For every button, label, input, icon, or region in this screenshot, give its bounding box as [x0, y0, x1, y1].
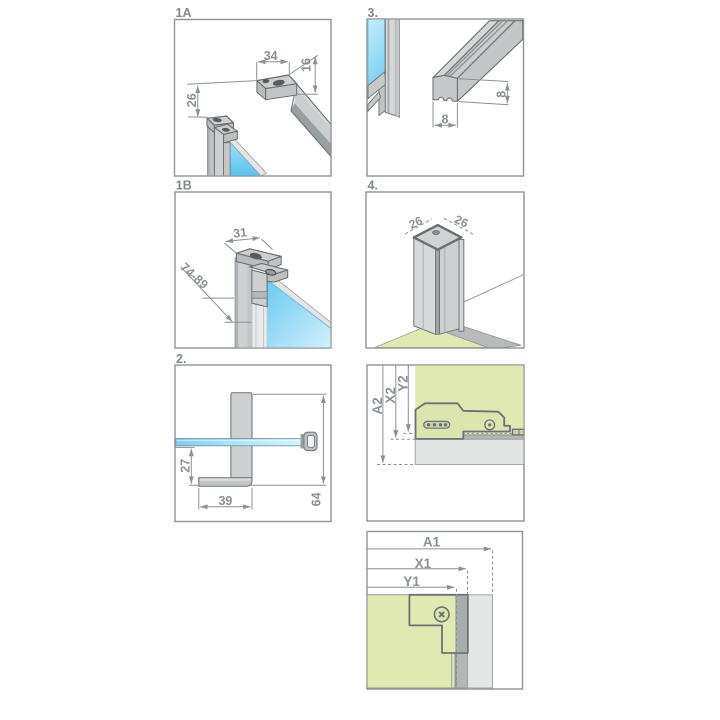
svg-text:1B: 1B	[176, 179, 192, 193]
svg-text:A2: A2	[370, 397, 385, 414]
svg-text:X1: X1	[415, 556, 432, 571]
svg-text:8: 8	[442, 112, 449, 126]
svg-text:31: 31	[232, 225, 247, 240]
svg-text:39: 39	[218, 494, 232, 508]
svg-text:4.: 4.	[368, 179, 378, 193]
svg-text:Y1: Y1	[403, 574, 420, 589]
svg-text:34: 34	[264, 49, 278, 63]
svg-text:8: 8	[494, 91, 508, 98]
svg-text:2.: 2.	[176, 352, 186, 366]
svg-text:64: 64	[309, 492, 323, 506]
svg-text:A1: A1	[423, 535, 441, 550]
svg-text:16: 16	[300, 58, 314, 72]
svg-text:X2: X2	[383, 387, 398, 404]
svg-text:26: 26	[185, 93, 199, 107]
svg-text:27: 27	[178, 459, 192, 473]
svg-text:26: 26	[452, 212, 470, 230]
svg-text:26: 26	[407, 213, 425, 231]
svg-text:74-89: 74-89	[178, 260, 211, 292]
svg-text:1A: 1A	[176, 6, 192, 20]
svg-text:3.: 3.	[368, 6, 378, 20]
